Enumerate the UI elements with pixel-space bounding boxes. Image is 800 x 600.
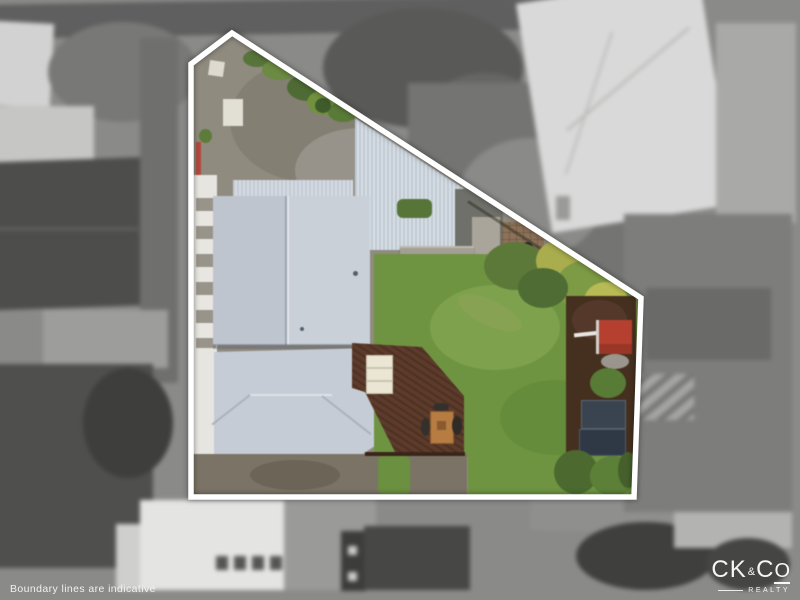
boundary-disclaimer-text: Boundary lines are indicative <box>10 583 156 595</box>
brand-ampersand: & <box>748 567 755 578</box>
brand-wordmark: CK & C O <box>718 558 790 584</box>
aerial-property-photo: Boundary lines are indicative CK & C O R… <box>0 0 800 600</box>
brand-o-underlined: O <box>774 561 790 584</box>
brand-logo: CK & C O REALTY <box>718 558 790 594</box>
boundary-outline <box>0 0 800 600</box>
boundary-polygon <box>191 33 641 497</box>
brand-rule-line <box>718 590 743 591</box>
brand-c: C <box>756 558 774 582</box>
brand-realty-text: REALTY <box>748 587 790 594</box>
brand-ck: CK <box>711 558 746 582</box>
brand-subline: REALTY <box>718 587 790 594</box>
